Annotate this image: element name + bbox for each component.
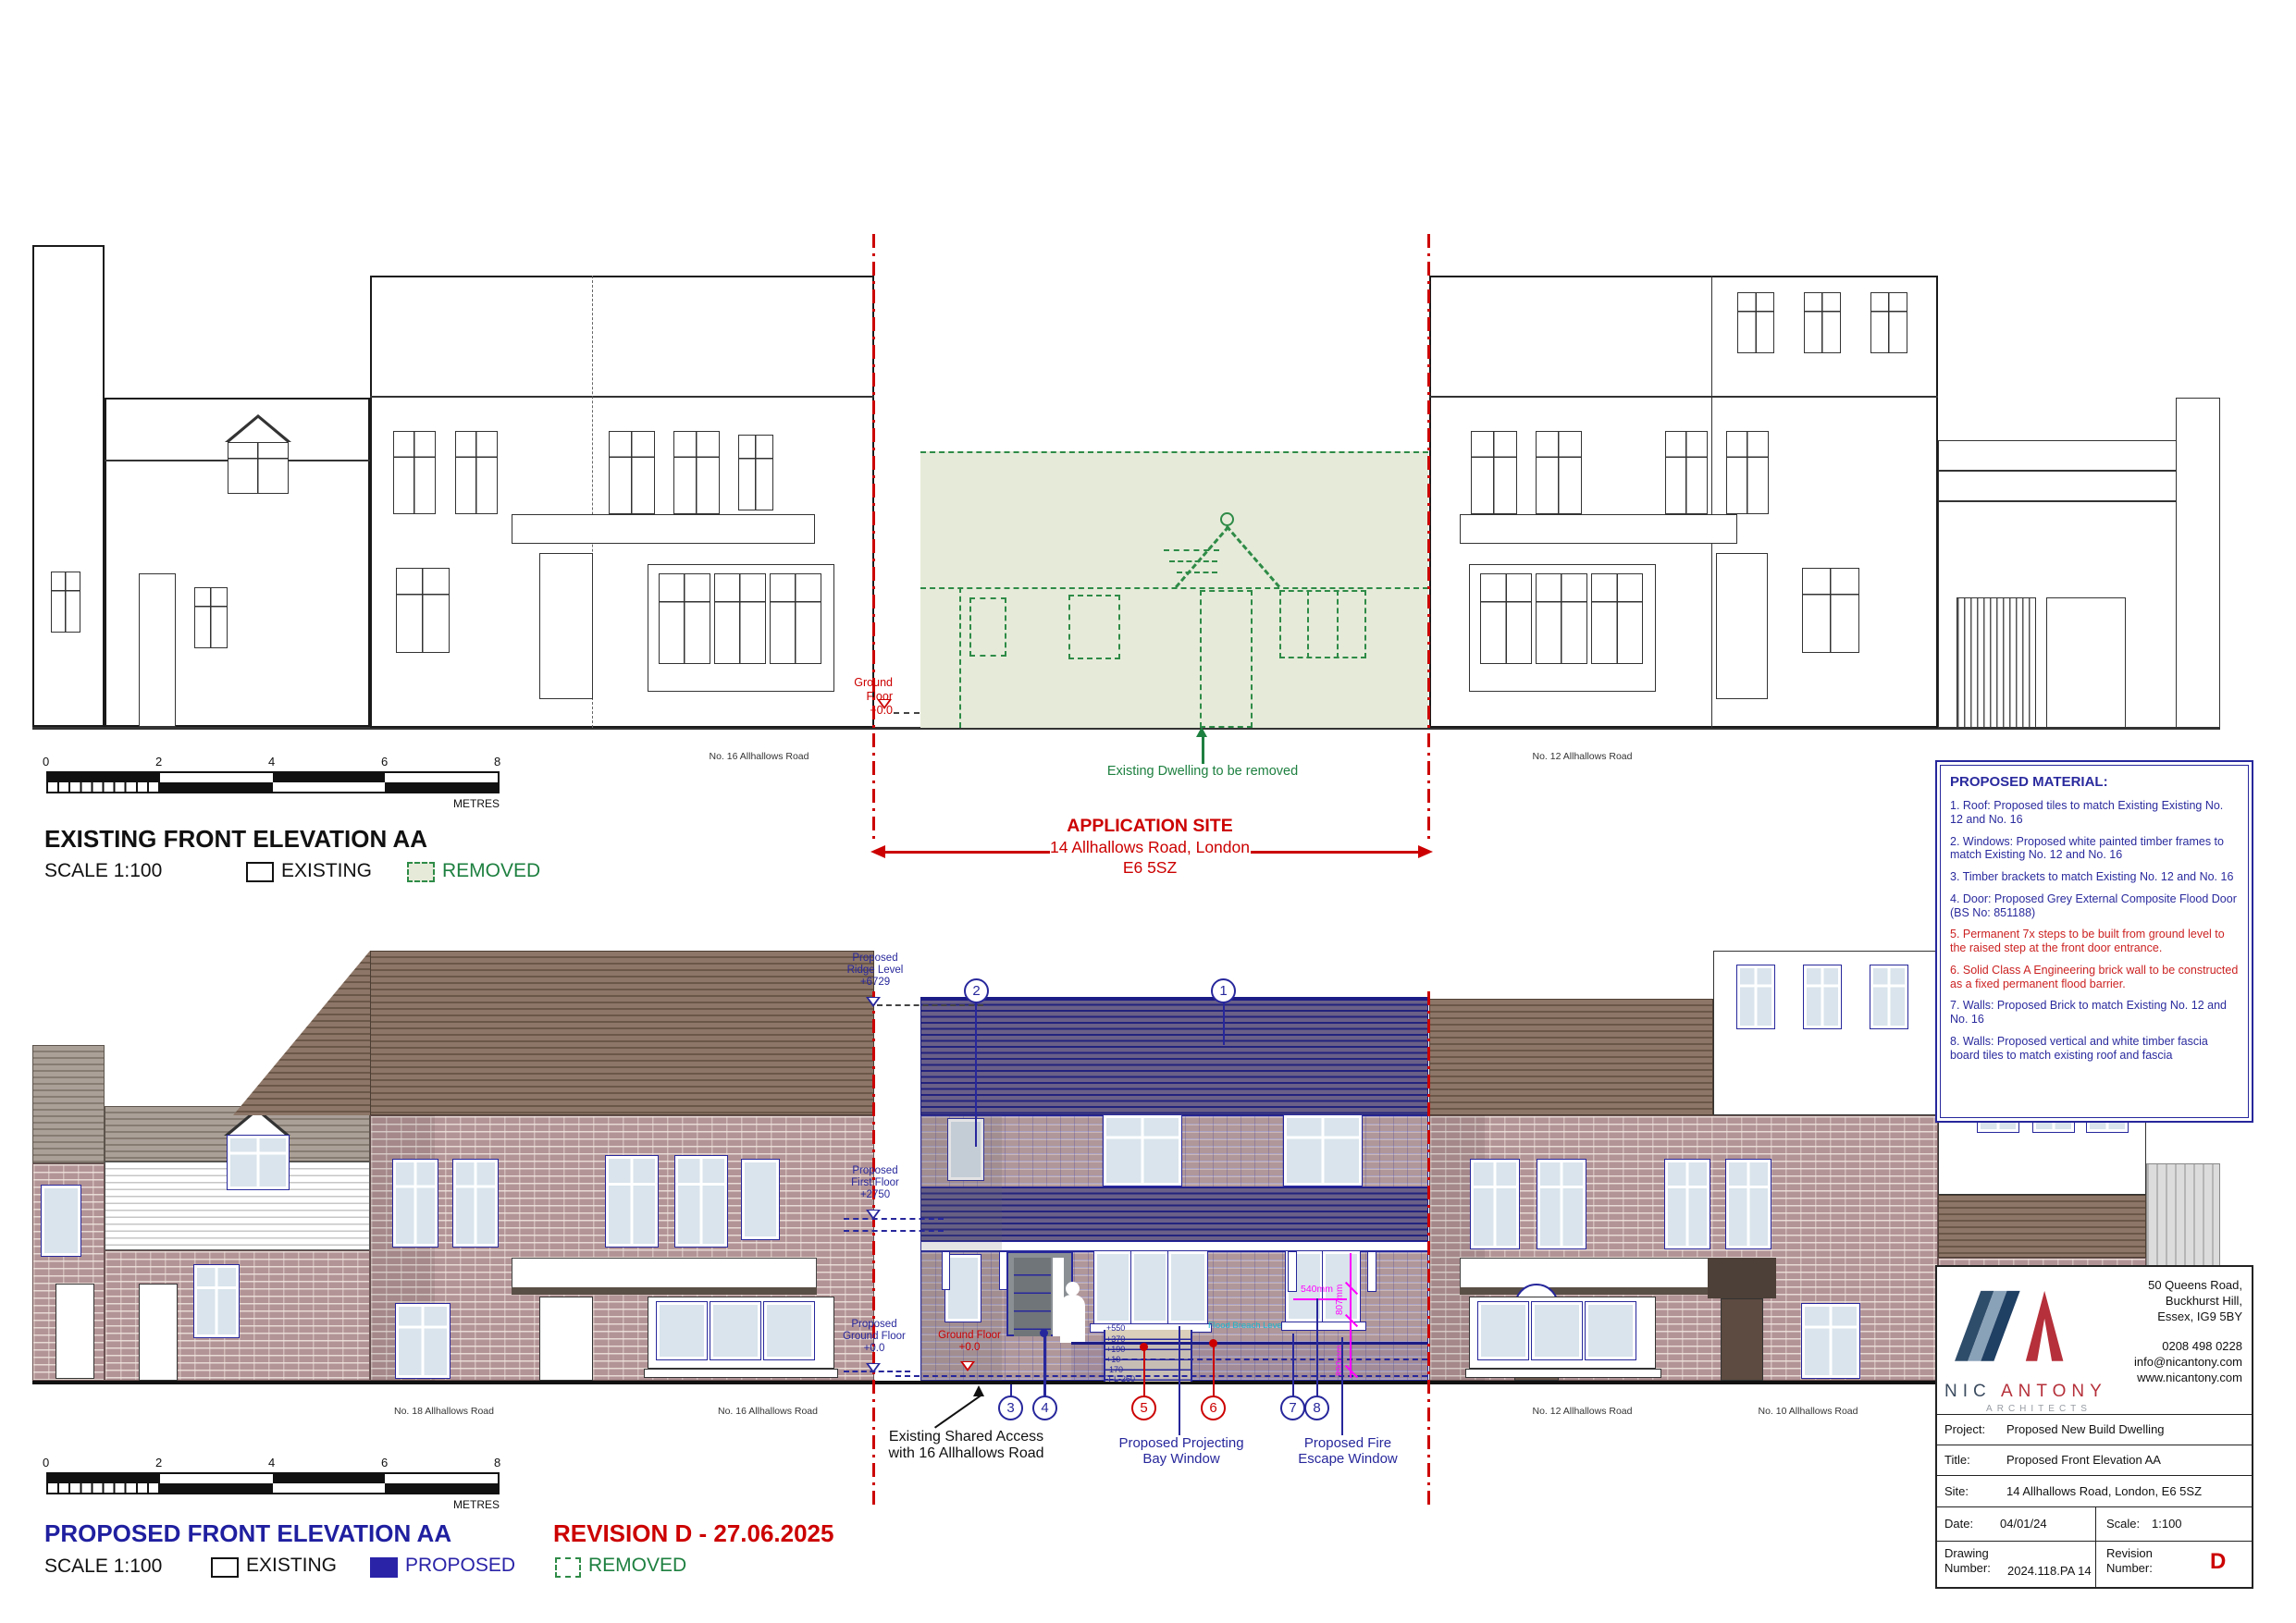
site-value: 14 Allhallows Road, London, E6 5SZ xyxy=(2006,1484,2202,1498)
legend-existing-label: EXISTING xyxy=(281,860,411,882)
window xyxy=(1471,1160,1519,1248)
site-boundary-line xyxy=(1427,234,1430,842)
scale-value: 1:100 xyxy=(2152,1517,2182,1531)
marker-1: 1 xyxy=(1211,978,1236,1003)
logo-architects: ARCHITECTS xyxy=(1974,1404,2104,1414)
leader-line xyxy=(1213,1346,1215,1396)
house-label-no16: No. 16 Allhallows Road xyxy=(675,1406,860,1420)
window xyxy=(1870,965,1907,1028)
tick-label: 4 xyxy=(268,755,279,768)
step-level: +550 xyxy=(1106,1324,1149,1333)
legend-proposed-label: PROPOSED xyxy=(405,1555,544,1577)
logo-nic: NIC xyxy=(1944,1382,1992,1401)
removed-window-mullion xyxy=(1337,590,1339,658)
dormer-gable xyxy=(225,414,291,442)
drawing-sheet: APPLICATION SITE 14 Allhallows Road, Lon… xyxy=(0,0,2296,1623)
removed-note-arrow-line xyxy=(1202,734,1204,764)
dimension-label-890: 890mm xyxy=(1335,1319,1345,1376)
arrow-up-icon xyxy=(973,1385,984,1396)
first-floor-level-label: Proposed First Floor +2750 xyxy=(835,1165,915,1208)
window xyxy=(609,431,655,514)
wall-line xyxy=(1711,276,1712,728)
note-item: 5. Permanent 7x steps to be built from g… xyxy=(1950,928,2239,955)
tick-label: 2 xyxy=(155,1456,167,1469)
drawing-number-value: 2024.118.PA 14 xyxy=(2007,1564,2092,1578)
house-label-no18: No. 18 Allhallows Road xyxy=(352,1406,537,1420)
house-label-no12: No. 12 Allhallows Road xyxy=(1487,751,1677,765)
legend-removed-label: REMOVED xyxy=(442,860,581,882)
revision-number-value: D xyxy=(2210,1549,2226,1575)
bay-sill xyxy=(1465,1369,1661,1378)
porch-canopy xyxy=(1708,1258,1776,1298)
dimension-line xyxy=(1350,1253,1352,1378)
window xyxy=(1536,573,1587,664)
proposed-title: PROPOSED FRONT ELEVATION AA xyxy=(44,1519,562,1547)
scale-bar: 0 2 4 6 8 METRES xyxy=(46,755,501,814)
roof xyxy=(370,951,874,1115)
legend-proposed-swatch xyxy=(370,1557,398,1578)
window xyxy=(194,1265,239,1337)
leader-line xyxy=(1143,1350,1145,1396)
door xyxy=(1721,1298,1763,1381)
canopy-underside xyxy=(1460,1287,1739,1295)
datum-dash-line xyxy=(895,1375,1427,1377)
window xyxy=(1537,1160,1586,1248)
ridge-level-label: Proposed Ridge Level +6729 xyxy=(835,953,915,995)
garage-door xyxy=(1957,597,2036,728)
window xyxy=(1804,965,1841,1028)
removed-window xyxy=(1068,595,1120,659)
window xyxy=(194,587,228,648)
window xyxy=(453,1160,498,1247)
window xyxy=(945,1255,981,1322)
ground-floor-level-label: Proposed Ground Floor +0.0 xyxy=(833,1319,916,1361)
leader-line xyxy=(1043,1335,1046,1396)
logo-wordmark: NIC ANTONY xyxy=(1944,1382,2111,1402)
tick-label: 8 xyxy=(494,1456,505,1469)
leader-line xyxy=(1316,1298,1318,1396)
leader-line xyxy=(975,1002,977,1147)
date-scale-row: Date: 04/01/24 Scale: 1:100 xyxy=(1937,1507,2252,1542)
project-row: Project: Proposed New Build Dwelling xyxy=(1937,1415,2252,1445)
arrow-up-icon xyxy=(1196,727,1207,737)
level-dash xyxy=(844,1218,944,1220)
project-label: Project: xyxy=(1944,1422,1985,1436)
removed-dwelling-note: Existing Dwelling to be removed xyxy=(1062,764,1343,782)
window xyxy=(1665,431,1708,514)
window xyxy=(42,1186,80,1256)
window xyxy=(606,1156,658,1247)
removed-roof-line xyxy=(920,587,1428,589)
site-row: Site: 14 Allhallows Road, London, E6 5SZ xyxy=(1937,1476,2252,1507)
site-label: Site: xyxy=(1944,1484,1969,1498)
window xyxy=(393,431,436,514)
note-item: 3. Timber brackets to match Existing No.… xyxy=(1950,870,2239,884)
revision-note: REVISION D - 27.06.2025 xyxy=(553,1519,942,1547)
leader-line xyxy=(1179,1326,1180,1435)
door xyxy=(1716,553,1768,699)
note-item: 1. Roof: Proposed tiles to match Existin… xyxy=(1950,799,2239,827)
legend-existing-swatch xyxy=(211,1557,239,1578)
title-value: Proposed Front Elevation AA xyxy=(2006,1453,2161,1467)
scale-bar-body xyxy=(46,771,500,793)
dormer-window xyxy=(228,442,289,494)
removed-hatch xyxy=(1164,549,1219,551)
leader-line xyxy=(934,1395,981,1429)
title-label: Title: xyxy=(1944,1453,1970,1467)
window xyxy=(1726,1160,1771,1248)
scale-bar-body xyxy=(46,1472,500,1494)
divider xyxy=(2095,1542,2096,1587)
removed-wall-line xyxy=(959,587,961,728)
notes-title: PROPOSED MATERIAL: xyxy=(1950,774,2239,790)
logo-row: NIC ANTONY ARCHITECTS 50 Queens Road, Bu… xyxy=(1937,1267,2252,1415)
logo-antony: ANTONY xyxy=(2001,1382,2107,1401)
fire-escape-label: Proposed Fire Escape Window xyxy=(1279,1435,1416,1472)
eaves-line xyxy=(370,396,874,398)
arrow-left-icon xyxy=(870,845,885,858)
window xyxy=(393,1160,438,1247)
roof xyxy=(1938,1195,2146,1258)
window xyxy=(673,431,720,514)
door xyxy=(139,573,176,727)
bay-sill xyxy=(644,1369,838,1378)
site-boundary-line xyxy=(1427,991,1430,1509)
bay-window-label: Proposed Projecting Bay Window xyxy=(1113,1435,1250,1472)
window xyxy=(1737,292,1774,353)
person-silhouette-head xyxy=(1066,1282,1080,1296)
architect-contact: 0208 498 0228 info@nicantony.com www.nic… xyxy=(2102,1339,2242,1386)
level-dash xyxy=(844,1371,910,1372)
legend-removed-label: REMOVED xyxy=(588,1555,718,1577)
tick-label: 6 xyxy=(381,755,392,768)
window xyxy=(1665,1160,1710,1248)
canopy-underside xyxy=(512,1287,817,1295)
door xyxy=(56,1284,94,1379)
legend-removed-swatch xyxy=(555,1557,581,1578)
application-site-address: 14 Allhallows Road, London xyxy=(965,838,1335,858)
bay-window-pane xyxy=(1094,1251,1131,1323)
notes-inner: PROPOSED MATERIAL: 1. Roof: Proposed til… xyxy=(1940,765,2249,1118)
window xyxy=(1870,292,1907,353)
timber-bracket xyxy=(1367,1251,1376,1292)
roof-hip xyxy=(233,951,370,1115)
marker-4: 4 xyxy=(1032,1396,1057,1420)
tick-label: 2 xyxy=(155,755,167,768)
person-silhouette-body xyxy=(1060,1295,1085,1343)
level-dash xyxy=(894,712,920,714)
house-label-no10: No. 10 Allhallows Road xyxy=(1713,1406,1903,1420)
marker-5: 5 xyxy=(1131,1396,1156,1420)
arrow-right-icon xyxy=(1418,845,1433,858)
window xyxy=(1737,965,1774,1028)
marker-2: 2 xyxy=(964,978,989,1003)
window xyxy=(1478,1302,1528,1359)
title-row: Title: Proposed Front Elevation AA xyxy=(1937,1445,2252,1476)
window xyxy=(1591,573,1643,664)
window xyxy=(1532,1302,1582,1359)
removed-window xyxy=(969,597,1006,657)
house-label-no16: No. 16 Allhallows Road xyxy=(664,751,854,765)
scale-bar: 0 2 4 6 8 METRES xyxy=(46,1456,501,1515)
bay-window-pane xyxy=(1168,1251,1207,1323)
date-label: Date: xyxy=(1944,1517,1973,1531)
window xyxy=(1284,1115,1362,1186)
marker-3: 3 xyxy=(998,1396,1023,1420)
window xyxy=(1804,292,1841,353)
door xyxy=(539,1297,593,1381)
marker-8: 8 xyxy=(1304,1396,1329,1420)
scale-bar-unit: METRES xyxy=(414,797,500,810)
window xyxy=(1586,1302,1636,1359)
removed-window-mullion xyxy=(1307,590,1309,658)
marker-7: 7 xyxy=(1280,1396,1305,1420)
removed-finial-circle xyxy=(1220,512,1234,526)
shared-access-label: Existing Shared Access with 16 Allhallow… xyxy=(862,1429,1070,1468)
window xyxy=(1536,431,1582,514)
legend-removed-swatch xyxy=(407,862,435,882)
window xyxy=(455,431,498,514)
existing-side-block xyxy=(32,245,105,727)
window xyxy=(396,568,450,653)
date-value: 04/01/24 xyxy=(2000,1517,2047,1531)
eaves-line xyxy=(1429,396,1938,398)
garage-door xyxy=(2046,597,2126,728)
proposed-material-notes: PROPOSED MATERIAL: 1. Roof: Proposed til… xyxy=(1935,760,2253,1123)
leader-dot xyxy=(1140,1343,1148,1351)
timber-bracket xyxy=(942,1251,950,1290)
datum-dash-line xyxy=(1104,1359,1427,1360)
note-item: 4. Door: Proposed Grey External Composit… xyxy=(1950,892,2239,920)
timber-bracket xyxy=(1288,1251,1297,1292)
leader-line xyxy=(1223,1002,1225,1045)
project-value: Proposed New Build Dwelling xyxy=(2006,1422,2165,1436)
architect-address: 50 Queens Road, Buckhurst Hill, Essex, I… xyxy=(2102,1278,2242,1325)
application-site-title: APPLICATION SITE xyxy=(965,816,1335,840)
drawing-number-label: Drawing Number: xyxy=(1944,1546,1991,1577)
nic-antony-logo-icon xyxy=(1948,1273,2087,1376)
ground-floor-red-label: Ground Floor +0.0 xyxy=(931,1330,1008,1359)
window xyxy=(675,1156,727,1247)
removed-door xyxy=(1200,590,1253,728)
window xyxy=(659,573,710,664)
drawing-revision-row: Drawing Number: 2024.118.PA 14 Revision … xyxy=(1937,1542,2252,1587)
proposed-roof xyxy=(920,999,1428,1115)
window xyxy=(1802,568,1859,653)
window xyxy=(657,1302,707,1359)
window xyxy=(1480,573,1532,664)
timber-bracket xyxy=(999,1251,1007,1290)
door xyxy=(139,1284,178,1381)
side-wall xyxy=(2176,398,2220,728)
window xyxy=(1802,1304,1859,1378)
window xyxy=(1726,431,1769,514)
window xyxy=(710,1302,760,1359)
dimension-label-807: 807mm xyxy=(1335,1258,1345,1315)
application-site-postcode: E6 5SZ xyxy=(965,858,1335,879)
tick-label: 8 xyxy=(494,755,505,768)
note-item: 7. Walls: Proposed Brick to match Existi… xyxy=(1950,999,2239,1027)
level-marker-icon xyxy=(877,699,892,709)
window xyxy=(738,435,773,510)
flood-door xyxy=(1014,1258,1051,1336)
level-marker-icon xyxy=(960,1361,975,1371)
note-item: 2. Windows: Proposed white painted timbe… xyxy=(1950,835,2239,863)
level-dash xyxy=(844,1230,944,1232)
window xyxy=(714,573,766,664)
window xyxy=(51,572,80,633)
tick-label: 0 xyxy=(43,1456,54,1469)
leader-dot xyxy=(1209,1339,1217,1347)
proposed-ridge-line xyxy=(920,997,1428,1001)
leader-dot xyxy=(1040,1329,1048,1337)
removed-hatch xyxy=(1177,572,1217,573)
canopy xyxy=(1460,514,1737,544)
site-boundary-line xyxy=(872,234,875,842)
scale-bar-unit: METRES xyxy=(414,1498,500,1511)
note-item: 6. Solid Class A Engineering brick wall … xyxy=(1950,964,2239,991)
dormer-window xyxy=(228,1136,289,1189)
leader-line xyxy=(1292,1334,1294,1396)
existing-title: EXISTING FRONT ELEVATION AA xyxy=(44,825,636,853)
tick-label: 4 xyxy=(268,1456,279,1469)
bay-window-pane xyxy=(1131,1251,1168,1323)
window xyxy=(1104,1115,1181,1186)
window xyxy=(770,573,821,664)
window xyxy=(764,1302,814,1359)
marker-6: 6 xyxy=(1201,1396,1226,1420)
divider xyxy=(2095,1507,2096,1542)
roof xyxy=(1429,999,1713,1115)
proposed-scale-label: SCALE 1:100 xyxy=(44,1555,202,1578)
title-block: NIC ANTONY ARCHITECTS 50 Queens Road, Bu… xyxy=(1935,1265,2253,1589)
tick-label: 6 xyxy=(381,1456,392,1469)
existing-scale-label: SCALE 1:100 xyxy=(44,860,202,882)
roof xyxy=(32,1045,105,1163)
door xyxy=(539,553,593,699)
window xyxy=(742,1160,779,1239)
revision-number-label: Revision Number: xyxy=(2106,1546,2153,1577)
window xyxy=(1471,431,1517,514)
legend-existing-swatch xyxy=(246,862,274,882)
scale-label: Scale: xyxy=(2106,1517,2140,1531)
removed-hatch xyxy=(1169,560,1217,562)
level-dash xyxy=(877,1004,983,1006)
window xyxy=(396,1304,450,1378)
leader-line xyxy=(1341,1337,1343,1435)
removed-window xyxy=(1279,590,1366,658)
tick-label: 0 xyxy=(43,755,54,768)
legend-existing-label: EXISTING xyxy=(246,1555,366,1577)
note-item: 8. Walls: Proposed vertical and white ti… xyxy=(1950,1035,2239,1063)
canopy xyxy=(512,514,815,544)
house-label-no12: No. 12 Allhallows Road xyxy=(1487,1406,1677,1420)
